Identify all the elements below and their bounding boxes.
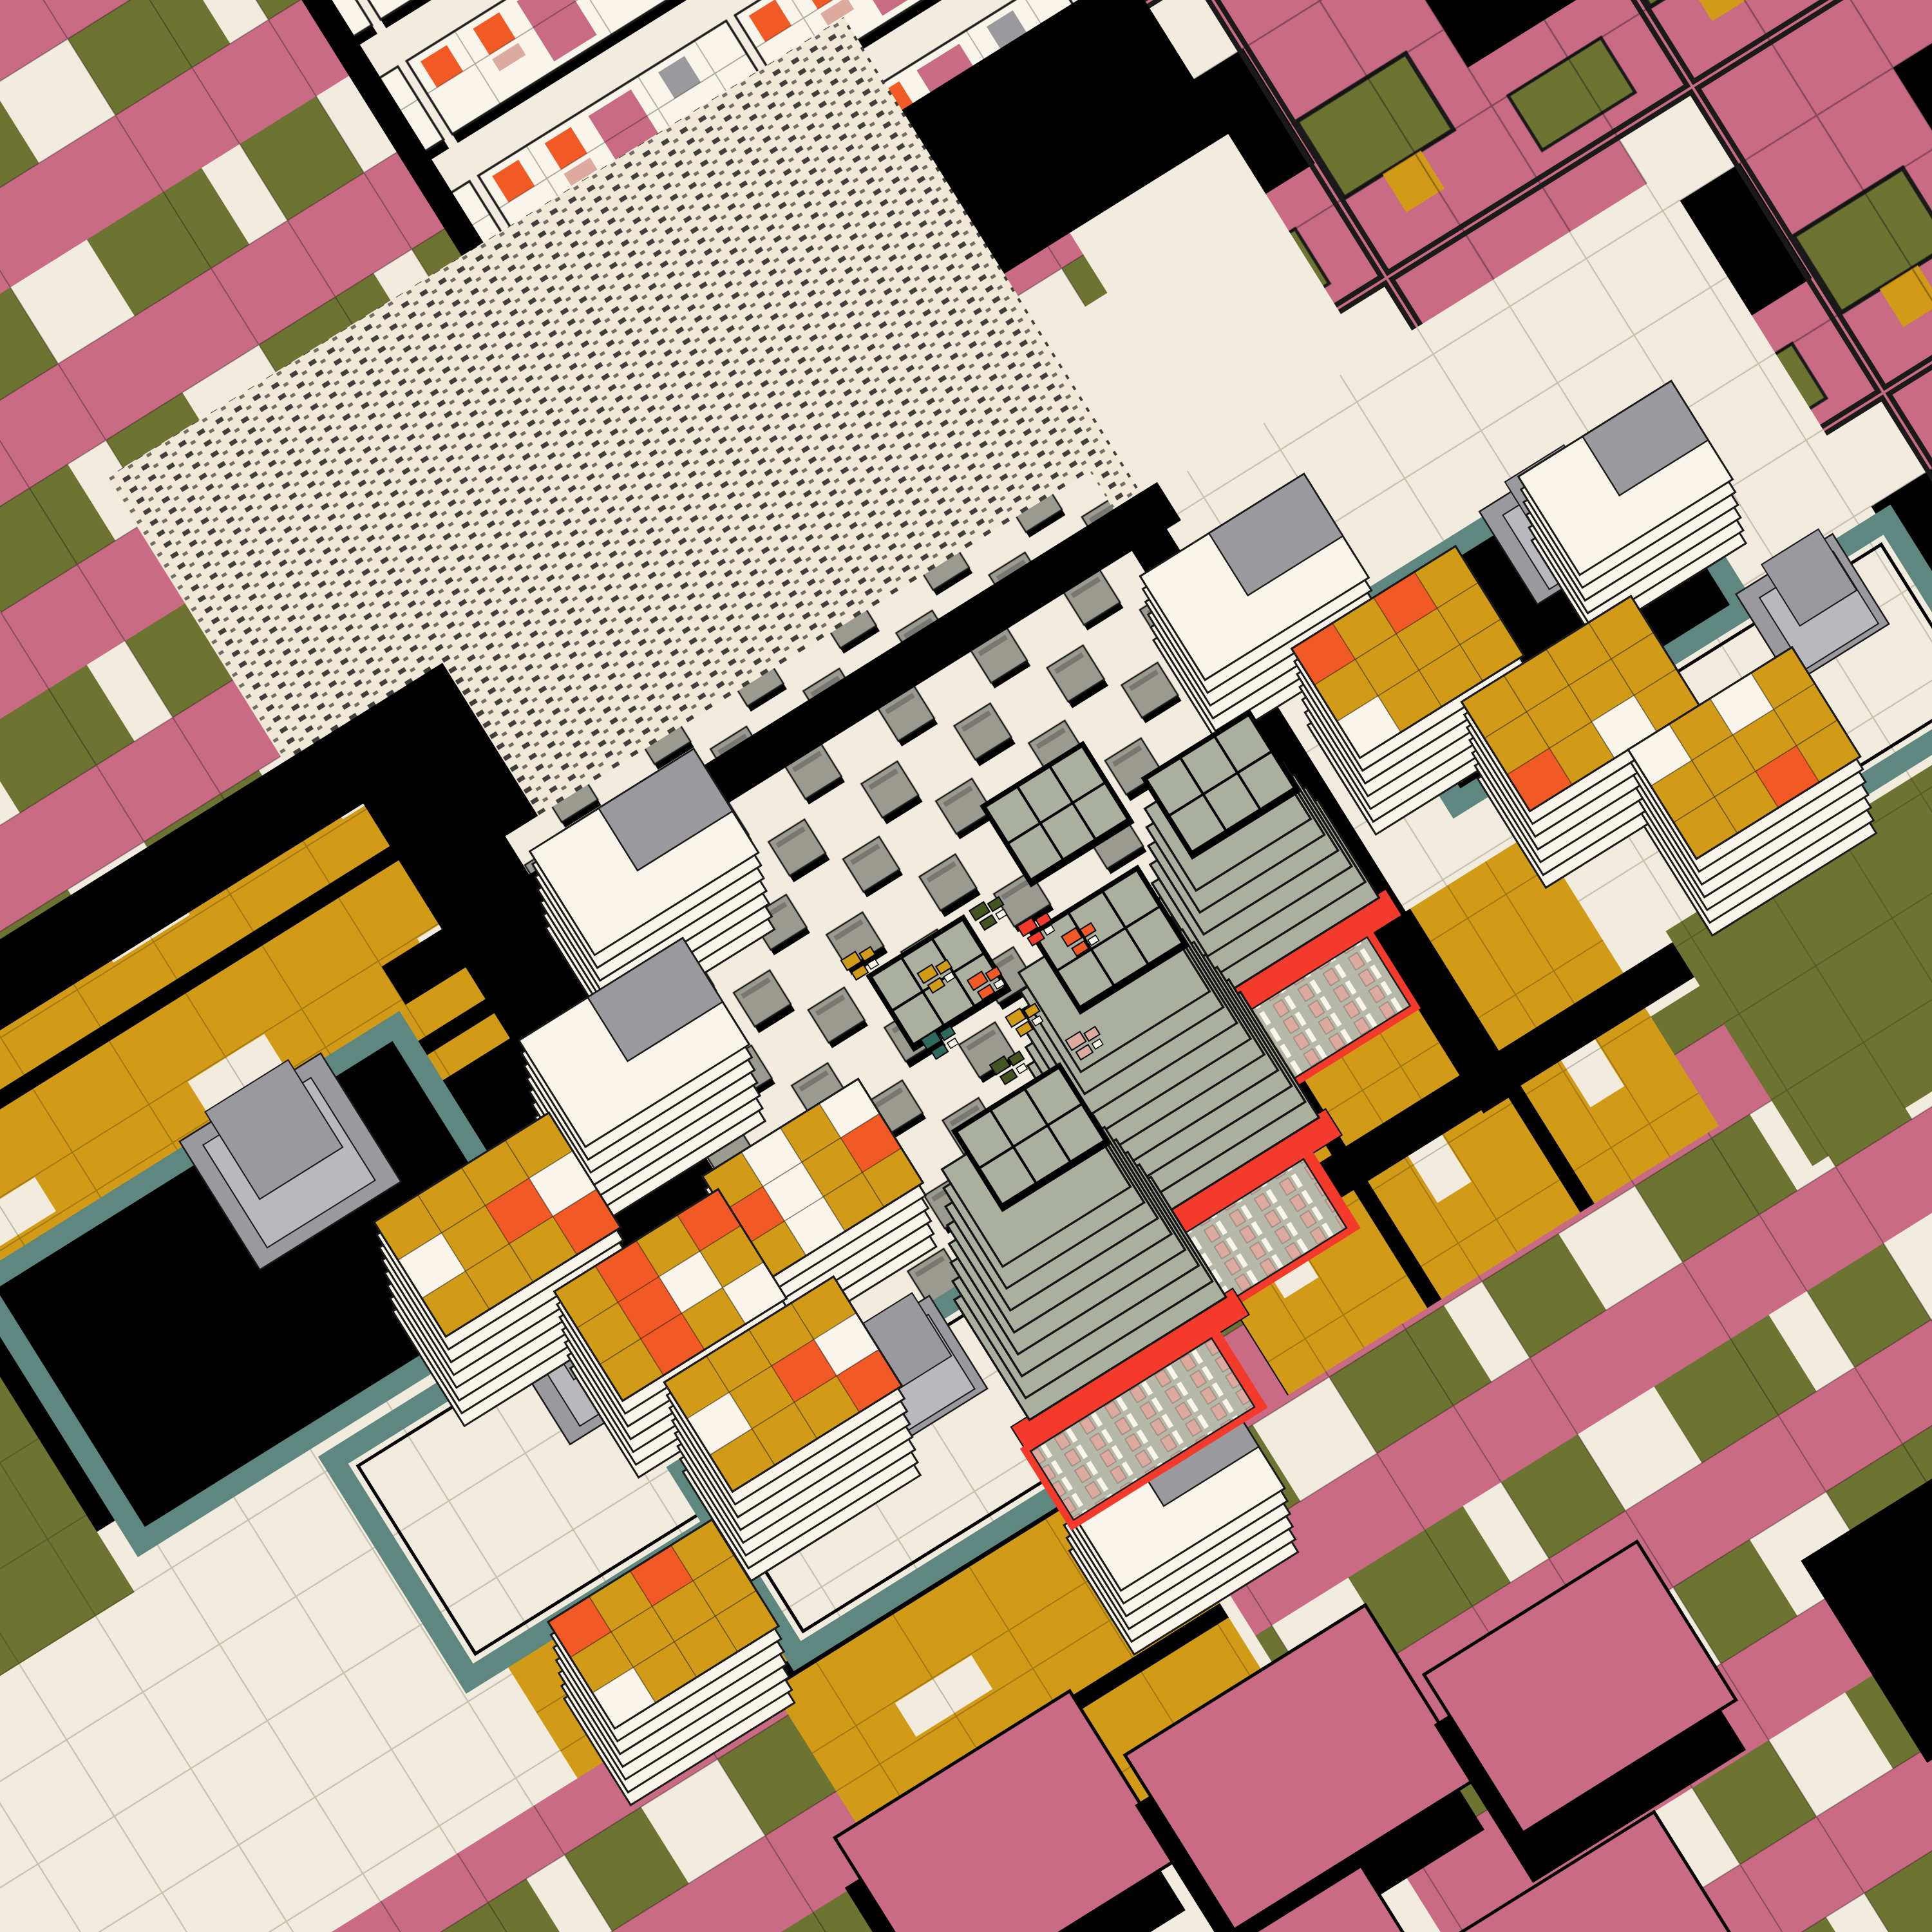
city-world bbox=[0, 0, 1932, 1932]
artwork-frame bbox=[0, 0, 1932, 1932]
generative-city-artwork bbox=[0, 0, 1932, 1932]
